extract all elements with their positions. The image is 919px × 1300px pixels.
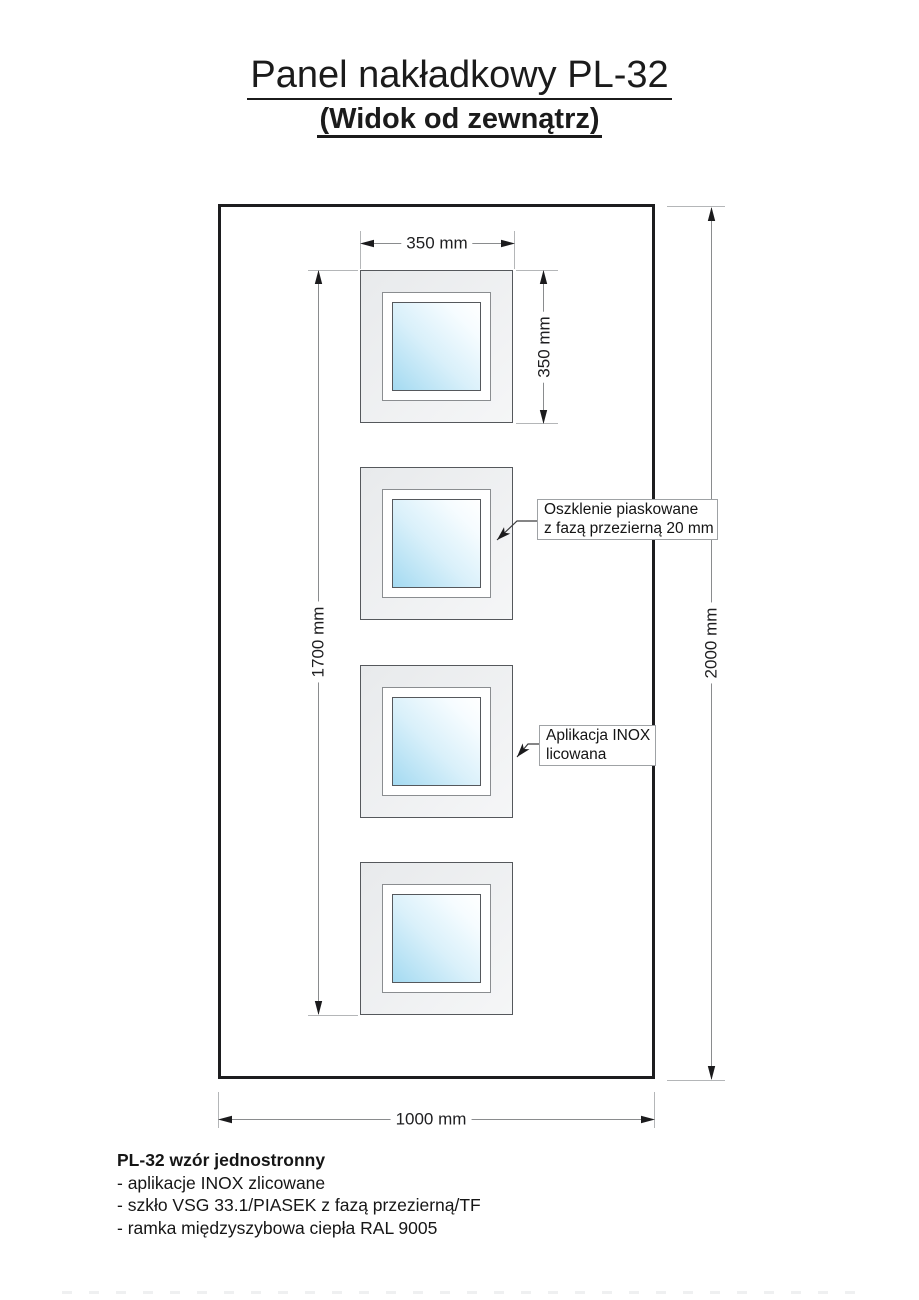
window-2-glass <box>392 499 481 588</box>
notes-heading: PL-32 wzór jednostronny <box>117 1149 481 1172</box>
callout-glazing-line2: z fazą przezierną 20 mm <box>544 520 711 539</box>
dim-label-panel-width: 1000 mm <box>391 1108 472 1129</box>
window-1-inner-frame <box>382 292 491 401</box>
drawing-subtitle: (Widok od zewnątrz) <box>317 104 601 138</box>
window-3-inner-frame <box>382 687 491 796</box>
title-block: Panel nakładkowy PL-32 (Widok od zewnątr… <box>0 56 919 138</box>
callout-inox-line1: Aplikacja INOX <box>546 727 649 746</box>
dim-label-panel-height: 2000 mm <box>700 603 721 684</box>
window-4-inner-frame <box>382 884 491 993</box>
callout-glazing: Oszklenie piaskowane z fazą przezierną 2… <box>537 499 718 540</box>
glazing-window-1 <box>360 270 513 423</box>
notes-block: PL-32 wzór jednostronny - aplikacje INOX… <box>117 1149 481 1239</box>
glazing-window-2 <box>360 467 513 620</box>
window-3-glass <box>392 697 481 786</box>
note-item: - ramka międzyszybowa ciepła RAL 9005 <box>117 1217 481 1240</box>
window-2-inner-frame <box>382 489 491 598</box>
callout-inox: Aplikacja INOX licowana <box>539 725 656 766</box>
dim-label-window-height: 350 mm <box>533 311 554 382</box>
arrow-left-icon <box>218 1116 232 1123</box>
arrow-up-icon <box>708 207 715 221</box>
window-4-glass <box>392 894 481 983</box>
scan-artifact <box>62 1291 857 1294</box>
subtitle-row: (Widok od zewnątrz) <box>0 104 919 138</box>
callout-inox-line2: licowana <box>546 746 649 765</box>
arrow-right-icon <box>641 1116 655 1123</box>
technical-drawing-page: Panel nakładkowy PL-32 (Widok od zewnątr… <box>0 0 919 1300</box>
title-row: Panel nakładkowy PL-32 <box>0 56 919 100</box>
dim-label-window-width: 350 mm <box>401 232 472 253</box>
note-item: - szkło VSG 33.1/PIASEK z fazą przeziern… <box>117 1194 481 1217</box>
glazing-window-4 <box>360 862 513 1015</box>
arrow-down-icon <box>708 1066 715 1080</box>
callout-glazing-line1: Oszklenie piaskowane <box>544 501 711 520</box>
note-item: - aplikacje INOX zlicowane <box>117 1172 481 1195</box>
glazing-window-3 <box>360 665 513 818</box>
dim-label-windows-span: 1700 mm <box>307 602 328 683</box>
drawing-title: Panel nakładkowy PL-32 <box>247 56 671 100</box>
window-1-glass <box>392 302 481 391</box>
